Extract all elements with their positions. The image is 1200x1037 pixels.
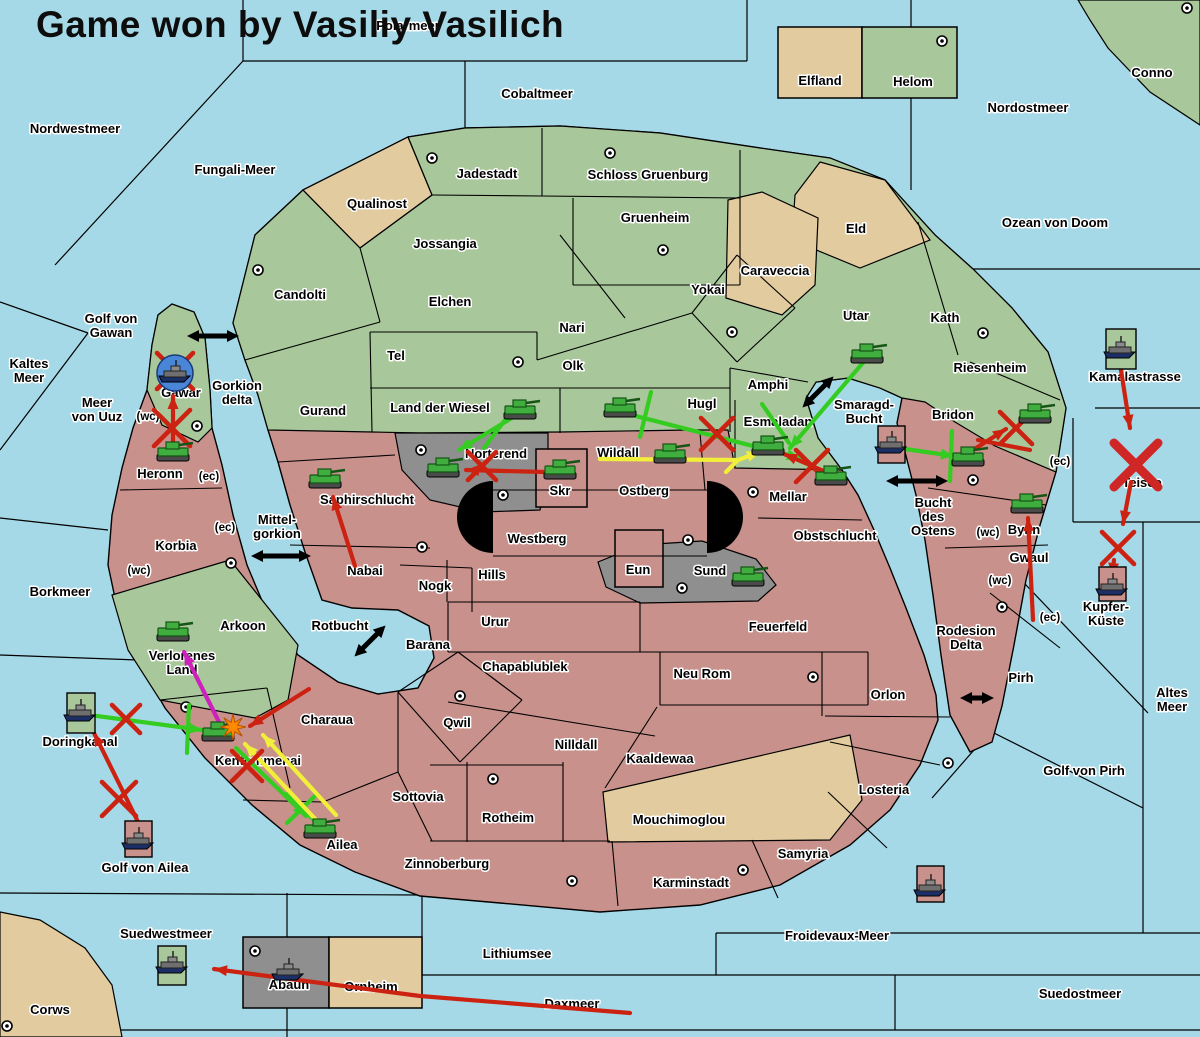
land-label-skr: Skr: [550, 483, 571, 498]
supply-center: [513, 357, 523, 367]
land-label-arkoon: Arkoon: [220, 618, 266, 633]
land-label-ostberg: Ostberg: [619, 483, 669, 498]
sea-label-altes-meer: AltesMeer: [1156, 685, 1188, 714]
land-label-qwil: Qwil: [443, 715, 470, 730]
land-label-land-der-wiesel: Land der Wiesel: [390, 400, 490, 415]
supply-center: [997, 602, 1007, 612]
land-label-jadestadt: Jadestadt: [457, 166, 518, 181]
land-label-jossangia: Jossangia: [413, 236, 477, 251]
land-label-pirh: Pirh: [1008, 670, 1033, 685]
fleet-unit[interactable]: [156, 946, 187, 985]
supply-center: [192, 421, 202, 431]
land-label-losteria: Losteria: [859, 782, 910, 797]
supply-center: [808, 672, 818, 682]
land-label-amphi: Amphi: [748, 377, 788, 392]
land-label-gurand: Gurand: [300, 403, 346, 418]
sea-label-rotbucht: Rotbucht: [311, 618, 369, 633]
sea-label-cobaltmeer: Cobaltmeer: [501, 86, 573, 101]
fleet-unit[interactable]: [914, 866, 945, 902]
sea-label-golf-von-gawan: Golf vonGawan: [85, 311, 138, 340]
land-label-urur: Urur: [481, 614, 508, 629]
land-label-bridon: Bridon: [932, 407, 974, 422]
land-label-elchen: Elchen: [429, 294, 472, 309]
supply-center: [738, 865, 748, 875]
battle-starburst: [220, 714, 246, 740]
land-label-nari: Nari: [559, 320, 584, 335]
move-arrow-green: [950, 431, 952, 481]
supply-center: [978, 328, 988, 338]
sea-label-mittel-gorkion: Mittel-gorkion: [253, 512, 301, 541]
land-label-candolti: Candolti: [274, 287, 326, 302]
supply-center: [1182, 3, 1192, 13]
land-label-neu-rom: Neu Rom: [673, 666, 730, 681]
land-label-feuerfeld: Feuerfeld: [749, 619, 808, 634]
land-label-ailea: Ailea: [326, 837, 358, 852]
sea-label-suedostmeer: Suedostmeer: [1039, 986, 1121, 1001]
coast-label--wc-: (wc): [977, 527, 1000, 539]
game-map-screenshot: PolarmeerNordwestmeerFungali-MeerCobaltm…: [0, 0, 1200, 1037]
supply-center: [416, 445, 426, 455]
land-label-nilldall: Nilldall: [555, 737, 598, 752]
sea-label-nordostmeer: Nordostmeer: [988, 100, 1069, 115]
land-label-hills: Hills: [478, 567, 505, 582]
supply-center: [727, 327, 737, 337]
supply-center: [677, 583, 687, 593]
supply-center: [567, 876, 577, 886]
fleet-unit[interactable]: [875, 426, 906, 463]
sea-label-froidevaux-meer: Froidevaux-Meer: [785, 928, 889, 943]
land-label-sottovia: Sottovia: [392, 789, 444, 804]
fleet-unit[interactable]: [122, 821, 153, 857]
sea-label-golf-von-ailea: Golf von Ailea: [102, 860, 190, 875]
supply-center: [253, 265, 263, 275]
coast-label--ec-: (ec): [1040, 612, 1061, 624]
fleet-unit[interactable]: [1104, 329, 1136, 369]
map-title: Game won by Vasiliy Vasilich: [36, 4, 564, 46]
land-label-conno: Conno: [1131, 65, 1172, 80]
land-label-tel: Tel: [387, 348, 405, 363]
fleet-unit[interactable]: [157, 355, 193, 391]
land-label-olk: Olk: [563, 358, 585, 373]
sea-label-ozean-von-doom: Ozean von Doom: [1002, 215, 1108, 230]
land-label-mellar: Mellar: [769, 489, 807, 504]
land-label-kaaldewaa: Kaaldewaa: [626, 751, 694, 766]
supply-center: [943, 758, 953, 768]
supply-center: [683, 535, 693, 545]
supply-center: [968, 475, 978, 485]
supply-center: [2, 1021, 12, 1031]
sea-label-kaltes-meer: KaltesMeer: [9, 356, 48, 385]
coast-label--ec-: (ec): [215, 522, 236, 534]
land-label-zinnoberburg: Zinnoberburg: [405, 856, 490, 871]
land-label-mouchimoglou: Mouchimoglou: [633, 812, 725, 827]
land-label-gruenheim: Gruenheim: [621, 210, 690, 225]
land-label-obstschlucht: Obstschlucht: [793, 528, 877, 543]
supply-center: [937, 36, 947, 46]
box-ornheim[interactable]: [329, 937, 422, 1008]
sea-label-fungali-meer: Fungali-Meer: [195, 162, 276, 177]
game-map: PolarmeerNordwestmeerFungali-MeerCobaltm…: [0, 0, 1200, 1037]
land-label-hugl: Hugl: [688, 396, 717, 411]
supply-center: [417, 542, 427, 552]
fleet-unit[interactable]: [64, 693, 95, 733]
land-label-rotheim: Rotheim: [482, 810, 534, 825]
land-label-eld: Eld: [846, 221, 866, 236]
land-label-westberg: Westberg: [508, 531, 567, 546]
coast-label--wc-: (wc): [128, 565, 151, 577]
land-label-charaua: Charaua: [301, 712, 354, 727]
sea-label-suedwestmeer: Suedwestmeer: [120, 926, 212, 941]
sea-label-doringkanal: Doringkanal: [42, 734, 117, 749]
land-label-elfland: Elfland: [798, 73, 841, 88]
land-label-karminstadt: Karminstadt: [653, 875, 730, 890]
land-label-schloss-gruenburg: Schloss Gruenburg: [588, 167, 709, 182]
land-label-qualinost: Qualinost: [347, 196, 408, 211]
supply-center: [427, 153, 437, 163]
supply-center: [226, 558, 236, 568]
land-label-eun: Eun: [626, 562, 651, 577]
land-label-helom: Helom: [893, 74, 933, 89]
supply-center: [748, 487, 758, 497]
sea-label-borkmeer: Borkmeer: [30, 584, 91, 599]
sea-label-nordwestmeer: Nordwestmeer: [30, 121, 120, 136]
land-label-yokai: Yokai: [691, 282, 725, 297]
land-label-barana: Barana: [406, 637, 451, 652]
land-label-heronn: Heronn: [137, 466, 183, 481]
supply-center: [250, 946, 260, 956]
sea-label-golf-von-pirh: Golf von Pirh: [1043, 763, 1125, 778]
coast-label--wc-: (wc): [989, 575, 1012, 587]
supply-center: [658, 245, 668, 255]
box-eun[interactable]: [615, 530, 663, 587]
land-label-orlon: Orlon: [871, 687, 906, 702]
fleet-unit[interactable]: [1096, 567, 1127, 601]
sea-label-kupfer-k-ste: Kupfer-Küste: [1083, 599, 1129, 628]
land-label-sund: Sund: [694, 563, 727, 578]
land-label-nogk: Nogk: [419, 578, 452, 593]
land-label-utar: Utar: [843, 308, 869, 323]
supply-center: [455, 691, 465, 701]
land-label-riesenheim: Riesenheim: [954, 360, 1027, 375]
supply-center: [605, 148, 615, 158]
sea-label-kamalastrasse: Kamalastrasse: [1089, 369, 1181, 384]
supply-center: [488, 774, 498, 784]
land-label-caraveccia: Caraveccia: [741, 263, 810, 278]
land-label-kath: Kath: [931, 310, 960, 325]
land-label-chapablublek: Chapablublek: [482, 659, 568, 674]
supply-center: [498, 490, 508, 500]
sea-label-lithiumsee: Lithiumsee: [483, 946, 552, 961]
land-label-korbia: Korbia: [155, 538, 197, 553]
coast-label--ec-: (ec): [1050, 456, 1071, 468]
land-label-samyria: Samyria: [778, 846, 829, 861]
land-label-corws: Corws: [30, 1002, 70, 1017]
coast-label--ec-: (ec): [199, 471, 220, 483]
move-arrow-green: [187, 705, 189, 753]
